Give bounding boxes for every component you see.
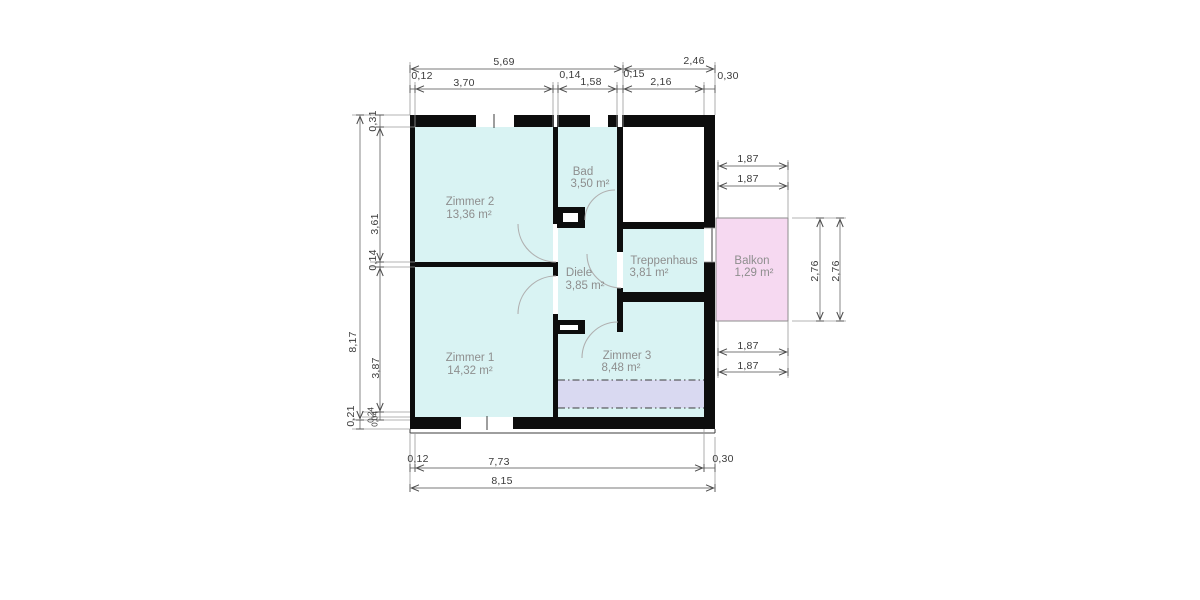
dim-top-seg1: 3,70 — [453, 77, 474, 89]
dim-left-seg3: 3,87 — [370, 357, 382, 378]
room-fill-zimmer1 — [415, 267, 553, 417]
dim-top-total-left: 5,69 — [493, 56, 514, 68]
room-label-diele: Diele — [566, 267, 592, 279]
room-area-diele: 3,85 m² — [566, 280, 605, 292]
room-fill-zimmer3-notch — [623, 302, 704, 320]
dim-top-seg5: 2,16 — [650, 76, 671, 88]
room-area-zimmer1: 14,32 m² — [447, 365, 492, 377]
wall-interior-h1 — [415, 262, 553, 267]
room-label-zimmer3: Zimmer 3 — [603, 350, 652, 362]
dim-balcony-side-0: 2,76 — [809, 260, 821, 281]
room-label-balkon: Balkon — [734, 255, 769, 267]
room-label-bad: Bad — [573, 166, 593, 178]
shaft-zimmer3-hole — [560, 325, 578, 330]
dim-bottom-total: 8,15 — [491, 475, 512, 487]
dim-balcony-top-1: 1,87 — [737, 173, 758, 185]
dim-bottom-seg1: 7,73 — [488, 456, 509, 468]
wall-left — [410, 115, 415, 429]
shaft-bad-hole — [563, 213, 578, 222]
dim-left-seg5: 0,04 — [371, 411, 380, 427]
wall-stairs-top — [623, 222, 704, 229]
dim-left-seg2: 0,14 — [367, 249, 379, 270]
dim-left-total: 8,17 — [347, 331, 359, 352]
room-fill-zimmer2 — [415, 127, 553, 262]
dim-top-seg4: 0,15 — [623, 68, 644, 80]
room-area-balkon: 1,29 m² — [735, 267, 774, 279]
floorplan-canvas: 5,69 2,46 0,12 3,70 0,14 1,58 0,15 2,16 … — [0, 0, 1200, 600]
wall-stairs-bottom — [617, 292, 704, 302]
dim-top-seg3: 1,58 — [580, 76, 601, 88]
room-area-zimmer2: 13,36 m² — [446, 209, 491, 221]
floorplan-drawing — [0, 0, 1200, 600]
wall-interior-v2a — [617, 127, 623, 252]
room-label-zimmer1: Zimmer 1 — [446, 352, 495, 364]
attic-strip — [558, 380, 704, 408]
dim-top-seg0: 0,12 — [411, 70, 432, 82]
room-label-treppenhaus: Treppenhaus — [630, 255, 697, 267]
dim-top-seg6: 0,30 — [717, 70, 738, 82]
wall-top — [410, 115, 715, 127]
dim-balcony-bottom-1: 1,87 — [737, 360, 758, 372]
room-fill-open-room — [623, 127, 704, 222]
wall-bottom — [410, 417, 715, 429]
dim-bottom-seg0: 0,12 — [407, 453, 428, 465]
dim-balcony-bottom-0: 1,87 — [737, 340, 758, 352]
dim-balcony-side-1: 2,76 — [830, 260, 842, 281]
dim-left-overhang: 0,21 — [345, 405, 357, 426]
wall-interior-v1b — [553, 262, 558, 276]
wall-right — [704, 115, 715, 429]
dim-bottom-seg2: 0,30 — [712, 453, 733, 465]
dim-left-seg0: 0,31 — [367, 110, 379, 131]
room-area-bad: 3,50 m² — [571, 178, 610, 190]
dim-top-seg2: 0,14 — [559, 69, 580, 81]
eaves-line — [410, 429, 715, 433]
room-label-zimmer2: Zimmer 2 — [446, 196, 495, 208]
dim-top-total-right: 2,46 — [683, 55, 704, 67]
dim-left-seg1: 3,61 — [369, 213, 381, 234]
room-area-zimmer3: 8,48 m² — [602, 362, 641, 374]
dim-balcony-top-0: 1,87 — [737, 153, 758, 165]
room-area-treppenhaus: 3,81 m² — [630, 267, 669, 279]
